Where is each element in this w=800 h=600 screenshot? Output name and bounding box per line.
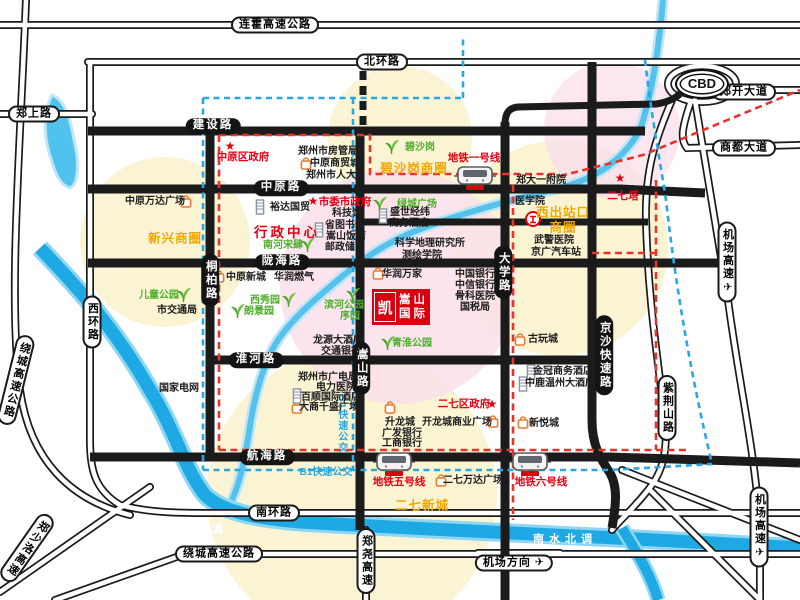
poi-yuda-guomao: 裕达国贸 [270, 202, 310, 214]
label-metro-line1: 地铁一号线 [448, 152, 501, 164]
label-zhengshang-road: 郑上路 [8, 106, 60, 123]
label-tongbai-road: 桐柏路 [201, 254, 219, 307]
poi-huarun-wanjia: 华润万家 [382, 269, 422, 281]
label-metro-line5: 地铁五号线 [373, 476, 426, 488]
poi-cehui-xueyuan: 测绘学院 [402, 250, 442, 262]
poi-wujing-yiyuan: 武警医院 [534, 235, 574, 247]
poi-zhengda-fuyuan: 郑大一附院 [516, 175, 566, 187]
label-zhongyuanqu-gov: 中原区政府 [217, 151, 270, 163]
label-longhai-road: 陇海路 [255, 254, 310, 270]
poi-shi-jiaotongju: 市交通局 [157, 305, 197, 317]
label-erqita-tower: 二七塔 [607, 190, 639, 202]
poi-yixueyuan: 医学院 [515, 196, 545, 208]
poi-zhonglu-jiudian: 中鹿温州大酒店 [525, 378, 595, 390]
label-shangdu-avenue: 商都大道 [712, 140, 776, 157]
label-hanghai-road: 航海路 [240, 449, 295, 465]
poi-renda: 郑州市人大 [306, 170, 356, 182]
label-qinghuai-park: 青淮公园 [392, 338, 432, 350]
label-xihuan-road: 西环路 [83, 296, 102, 349]
poi-jinguan-jiudian: 金冠商务酒店 [533, 366, 593, 378]
poi-kailongcheng: 开龙城商业广场 [422, 417, 492, 429]
plane-icon: ✈ [753, 546, 765, 561]
label-xinxing-circle: 新兴商圈 [148, 232, 202, 247]
label-bishagang-circle: 碧沙岗商圈 [380, 162, 448, 177]
label-jingsha-expwy: 京沙快速路 [595, 315, 613, 395]
label-zhongyuan-road: 中原路 [254, 180, 309, 196]
xichuzhankou-line2: 商圈 [536, 220, 590, 235]
label-nanhesongsi: 南河宋肆 [263, 240, 303, 252]
label-erqi-newtown: 二七新城 [395, 499, 449, 514]
label-erqiqu-gov: 二七区政府 [438, 398, 491, 410]
poi-fangguanju: 郑州市房管局 [298, 146, 358, 158]
metro6-train-icon [509, 453, 551, 476]
label-huaihe-road: 淮河路 [229, 352, 284, 368]
label-bishagang-park: 碧沙岗 [405, 142, 435, 154]
poi-kexue-dili: 科学地理研究所 [395, 238, 465, 250]
label-metro-line6: 地铁六号线 [515, 476, 568, 488]
star-icon: ★ [487, 398, 498, 410]
label-jianshe-road: 建设路 [186, 118, 241, 134]
project-logo: 凯 嵩山 国际 [372, 289, 430, 325]
poi-xinyuecheng: 新悦城 [529, 418, 559, 430]
label-cbd: CBD [675, 69, 729, 99]
label-airport-expwy-south: 机场高速✈ [750, 487, 769, 568]
label-airport-expwy-north: 机场高速✈ [718, 222, 737, 303]
label-airport-direction: 机场方向 ✈ [475, 555, 553, 572]
label-shiwei-gov: 市委市政府 [319, 196, 372, 208]
project-name-line2: 国际 [399, 307, 428, 321]
poi-jingguang-qichezhan: 京广汽车站 [531, 247, 581, 259]
poi-youzheng-chuxu: 邮政储蓄 [325, 242, 365, 254]
label-brt-b1: B1快速公交 [300, 467, 353, 479]
plane-icon: ✈ [721, 281, 733, 296]
poi-erqi-wanda: 二七万达广场 [443, 475, 503, 487]
poi-shangmaocheng: 中原商贸城 [310, 158, 360, 170]
airport-expwy-text: 机场高速 [753, 494, 765, 546]
label-xichuzhankou-circle: 西出站口商圈 [536, 205, 590, 235]
poi-shangwu-jiudian: 商务酒店 [389, 218, 429, 230]
poi-zhongyuan-wanda: 中原万达广场 [125, 196, 185, 208]
label-zijinshan-road: 紫荆山路 [658, 375, 677, 441]
project-logo-mark: 凯 [374, 292, 396, 322]
label-raocheng-expwy-south: 绕城高速公路 [175, 546, 263, 563]
label-langjingyuan: 朗景园 [244, 306, 274, 318]
poi-guwancheng: 古玩城 [528, 334, 558, 346]
map-canvas: 连霍高速公路 北环路 郑上路 郑开大道 商都大道 南环路 绕城高速公路 机场方向… [0, 0, 800, 600]
label-daxue-road: 大学路 [494, 246, 512, 299]
poi-zhongyuan-xincheng: 中原新城 [226, 272, 266, 284]
plane-icon: ✈ [535, 557, 545, 569]
label-nanhuan-road: 南环路 [248, 505, 300, 522]
label-canal-east: 南水北调 [533, 534, 597, 547]
poi-huarun-ranqi: 华润燃气 [274, 272, 314, 284]
airport-direction-text: 机场方向 [483, 557, 531, 569]
project-name-line1: 嵩山 [399, 293, 428, 307]
poi-dashang-qiansheng: 大商千盛广场 [299, 402, 359, 414]
poi-kejiguan: 科技馆 [332, 208, 362, 220]
label-canal-west: 南水北调 [158, 524, 230, 537]
label-xingzheng-center: 行政中心 [254, 225, 320, 241]
label-beihuan-road: 北环路 [356, 54, 408, 71]
star-icon: ★ [615, 172, 626, 184]
label-zhengyao-expwy: 郑尧高速 [357, 528, 376, 594]
poi-jiaotong-yinhang: 交通银行 [321, 346, 361, 358]
poi-gongshang-yinhang: 工商银行 [382, 438, 422, 450]
airport-expwy-text: 机场高速 [721, 229, 733, 281]
poi-guoshuiju: 国税局 [460, 302, 490, 314]
label-xuyuan: 序园 [340, 311, 360, 323]
poi-guojia-dianwang: 国家电网 [159, 383, 199, 395]
label-lianhuo-expwy: 连霍高速公路 [231, 17, 319, 34]
label-ertong-park: 儿童公园 [139, 290, 179, 302]
